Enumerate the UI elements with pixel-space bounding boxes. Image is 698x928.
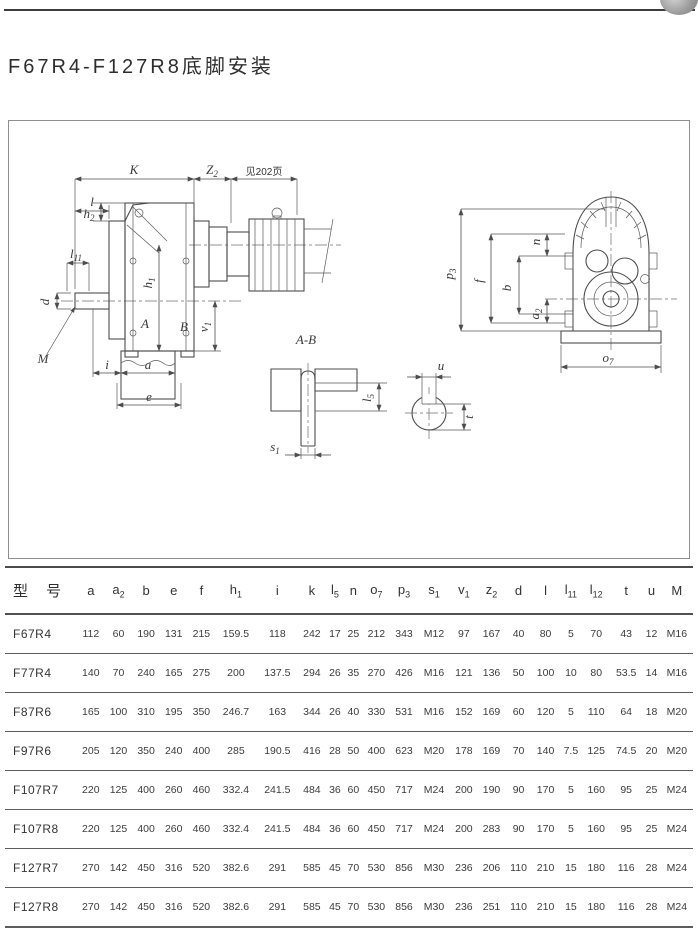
value-cell: 484	[298, 810, 326, 849]
value-cell: 530	[363, 888, 391, 928]
value-cell: 212	[363, 614, 391, 654]
value-cell: 28	[642, 888, 660, 928]
value-cell: 120	[105, 732, 133, 771]
value-cell: 159.5	[215, 614, 256, 654]
column-header-z2: z2	[478, 567, 506, 614]
top-rule	[4, 9, 695, 11]
value-cell: 270	[77, 888, 105, 928]
value-cell: 125	[105, 810, 133, 849]
value-cell: 80	[582, 654, 610, 693]
value-cell: 450	[132, 849, 160, 888]
dim-label-o7: o7	[603, 350, 615, 367]
value-cell: 220	[77, 810, 105, 849]
column-header-l5: l5	[326, 567, 344, 614]
value-cell: 206	[478, 849, 506, 888]
value-cell: 382.6	[215, 849, 256, 888]
value-cell: 165	[77, 693, 105, 732]
value-cell: 450	[132, 888, 160, 928]
value-cell: 28	[642, 849, 660, 888]
value-cell: 210	[532, 888, 560, 928]
dim-label-u: u	[438, 358, 445, 373]
value-cell: 116	[610, 888, 642, 928]
value-cell: 450	[363, 771, 391, 810]
value-cell: 205	[77, 732, 105, 771]
dim-label-a-mark: A	[140, 316, 149, 331]
dim-label-b: b	[499, 284, 514, 291]
value-cell: 5	[559, 693, 582, 732]
value-cell: 260	[160, 810, 188, 849]
value-cell: 112	[77, 614, 105, 654]
dim-label-n: n	[528, 239, 543, 246]
value-cell: 142	[105, 849, 133, 888]
value-cell: 195	[160, 693, 188, 732]
value-cell: M16	[661, 654, 693, 693]
value-cell: 167	[478, 614, 506, 654]
value-cell: 856	[390, 849, 418, 888]
value-cell: 332.4	[215, 810, 256, 849]
table-row: F127R7270142450316520382.629158545705308…	[5, 849, 693, 888]
value-cell: 15	[559, 849, 582, 888]
value-cell: 520	[188, 888, 216, 928]
column-header-l11: l11	[559, 567, 582, 614]
column-header-t: t	[610, 567, 642, 614]
dim-label-d: d	[37, 298, 52, 305]
value-cell: 400	[132, 771, 160, 810]
column-header-a: a	[77, 567, 105, 614]
value-cell: 210	[532, 849, 560, 888]
value-cell: 95	[610, 771, 642, 810]
value-cell: 246.7	[215, 693, 256, 732]
value-cell: 316	[160, 888, 188, 928]
value-cell: 270	[77, 849, 105, 888]
value-cell: 178	[450, 732, 478, 771]
dim-label-a: a	[145, 357, 152, 372]
value-cell: M24	[661, 810, 693, 849]
value-cell: 251	[478, 888, 506, 928]
spec-table-body: F67R411260190131215159.51182421725212343…	[5, 614, 693, 927]
value-cell: 160	[582, 810, 610, 849]
value-cell: 294	[298, 654, 326, 693]
value-cell: 50	[344, 732, 362, 771]
value-cell: M12	[418, 614, 450, 654]
column-header-h1: h1	[215, 567, 256, 614]
value-cell: 45	[326, 888, 344, 928]
value-cell: 70	[344, 849, 362, 888]
spec-table-header-row: 型 号aa2befh1ikl5no7p3s1v1z2dll11l12tuM	[5, 567, 693, 614]
column-header-v1: v1	[450, 567, 478, 614]
dim-label-v1: v1	[196, 322, 213, 332]
dim-label-h1: h1	[140, 278, 157, 289]
value-cell: 460	[188, 810, 216, 849]
drawing-note: 见202页	[246, 166, 283, 178]
value-cell: 450	[363, 810, 391, 849]
spec-table: 型 号aa2befh1ikl5no7p3s1v1z2dll11l12tuM F6…	[5, 566, 693, 928]
model-cell: F107R8	[5, 810, 77, 849]
dim-label-p3: p3	[441, 268, 458, 281]
model-cell: F127R8	[5, 888, 77, 928]
column-header-s1: s1	[418, 567, 450, 614]
column-header-d: d	[505, 567, 531, 614]
value-cell: 90	[505, 771, 531, 810]
value-cell: 60	[344, 810, 362, 849]
model-cell: F107R7	[5, 771, 77, 810]
value-cell: 316	[160, 849, 188, 888]
table-row: F107R7220125400260460332.4241.5484366045…	[5, 771, 693, 810]
value-cell: 310	[132, 693, 160, 732]
column-header-k: k	[298, 567, 326, 614]
value-cell: 60	[505, 693, 531, 732]
dim-label-k: K	[129, 162, 140, 177]
value-cell: M16	[418, 693, 450, 732]
value-cell: 60	[344, 771, 362, 810]
value-cell: 14	[642, 654, 660, 693]
value-cell: 200	[450, 810, 478, 849]
value-cell: 35	[344, 654, 362, 693]
value-cell: 43	[610, 614, 642, 654]
value-cell: 270	[363, 654, 391, 693]
section-view-ab: A-B l5 s1	[270, 332, 387, 459]
value-cell: 160	[582, 771, 610, 810]
value-cell: M24	[661, 771, 693, 810]
value-cell: 520	[188, 849, 216, 888]
value-cell: 45	[326, 849, 344, 888]
value-cell: 285	[215, 732, 256, 771]
value-cell: M20	[418, 732, 450, 771]
table-row: F67R411260190131215159.51182421725212343…	[5, 614, 693, 654]
value-cell: 291	[257, 888, 298, 928]
column-header-b: b	[132, 567, 160, 614]
column-header-a2: a2	[105, 567, 133, 614]
model-cell: F97R6	[5, 732, 77, 771]
value-cell: 236	[450, 888, 478, 928]
column-header-l: l	[532, 567, 560, 614]
value-cell: 70	[344, 888, 362, 928]
value-cell: 70	[505, 732, 531, 771]
value-cell: 17	[326, 614, 344, 654]
value-cell: M30	[418, 849, 450, 888]
value-cell: 484	[298, 771, 326, 810]
value-cell: 7.5	[559, 732, 582, 771]
model-cell: F67R4	[5, 614, 77, 654]
value-cell: 382.6	[215, 888, 256, 928]
column-header-l12: l12	[582, 567, 610, 614]
value-cell: 74.5	[610, 732, 642, 771]
technical-drawing-box: K Z2 见202页 l h2 l11 d M h1 A B v1 i a e …	[8, 120, 690, 559]
value-cell: 18	[642, 693, 660, 732]
value-cell: 200	[450, 771, 478, 810]
side-view: K Z2 见202页 l h2 l11 d M h1 A B v1 i a e	[37, 162, 341, 409]
value-cell: 180	[582, 849, 610, 888]
value-cell: 53.5	[610, 654, 642, 693]
value-cell: 26	[326, 654, 344, 693]
value-cell: 40	[505, 614, 531, 654]
column-header-n: n	[344, 567, 362, 614]
value-cell: 25	[344, 614, 362, 654]
value-cell: 50	[505, 654, 531, 693]
value-cell: 15	[559, 888, 582, 928]
table-row: F77R414070240165275200137.52942635270426…	[5, 654, 693, 693]
page-title: F67R4-F127R8底脚安装	[8, 50, 274, 79]
value-cell: 717	[390, 810, 418, 849]
table-row: F97R6205120350240400285190.5416285040062…	[5, 732, 693, 771]
table-row: F107R8220125400260460332.4241.5484366045…	[5, 810, 693, 849]
column-header-p3: p3	[390, 567, 418, 614]
value-cell: 236	[450, 849, 478, 888]
value-cell: 291	[257, 849, 298, 888]
value-cell: 275	[188, 654, 216, 693]
value-cell: 140	[532, 732, 560, 771]
value-cell: 120	[532, 693, 560, 732]
value-cell: 163	[257, 693, 298, 732]
dim-label-m: M	[37, 351, 50, 366]
section-title: A-B	[295, 332, 316, 347]
value-cell: 142	[105, 888, 133, 928]
value-cell: 25	[642, 810, 660, 849]
value-cell: 400	[188, 732, 216, 771]
rear-view: p3 f b a2 n o7	[441, 191, 677, 373]
column-header-i: i	[257, 567, 298, 614]
dim-label-z2: Z2	[206, 162, 218, 179]
corner-logo	[660, 0, 698, 15]
value-cell: 426	[390, 654, 418, 693]
value-cell: 125	[582, 732, 610, 771]
value-cell: 28	[326, 732, 344, 771]
value-cell: 116	[610, 849, 642, 888]
value-cell: 125	[105, 771, 133, 810]
value-cell: 136	[478, 654, 506, 693]
value-cell: 180	[582, 888, 610, 928]
dim-label-i: i	[105, 357, 109, 372]
column-header-e: e	[160, 567, 188, 614]
value-cell: 5	[559, 614, 582, 654]
value-cell: 5	[559, 771, 582, 810]
value-cell: 856	[390, 888, 418, 928]
model-cell: F77R4	[5, 654, 77, 693]
value-cell: 90	[505, 810, 531, 849]
value-cell: 350	[188, 693, 216, 732]
value-cell: 215	[188, 614, 216, 654]
value-cell: 20	[642, 732, 660, 771]
table-row: F87R6165100310195350246.7163344264033053…	[5, 693, 693, 732]
value-cell: 100	[532, 654, 560, 693]
value-cell: 70	[582, 614, 610, 654]
column-header-f: f	[188, 567, 216, 614]
dim-label-a2: a2	[527, 308, 544, 320]
value-cell: 330	[363, 693, 391, 732]
value-cell: 10	[559, 654, 582, 693]
dim-label-b-mark: B	[180, 319, 188, 334]
column-header-model: 型 号	[5, 567, 77, 614]
column-header-u: u	[642, 567, 660, 614]
value-cell: 585	[298, 849, 326, 888]
dim-label-l: l	[90, 194, 94, 209]
value-cell: 531	[390, 693, 418, 732]
value-cell: 460	[188, 771, 216, 810]
value-cell: 717	[390, 771, 418, 810]
value-cell: 585	[298, 888, 326, 928]
value-cell: 152	[450, 693, 478, 732]
value-cell: M30	[418, 888, 450, 928]
value-cell: 169	[478, 693, 506, 732]
value-cell: 110	[505, 849, 531, 888]
dim-label-s1: s1	[270, 439, 280, 456]
value-cell: M24	[661, 888, 693, 928]
value-cell: 70	[105, 654, 133, 693]
value-cell: 26	[326, 693, 344, 732]
value-cell: 97	[450, 614, 478, 654]
value-cell: M24	[418, 810, 450, 849]
model-cell: F87R6	[5, 693, 77, 732]
dim-label-t: t	[461, 415, 476, 419]
column-header-o7: o7	[363, 567, 391, 614]
value-cell: 95	[610, 810, 642, 849]
value-cell: 12	[642, 614, 660, 654]
value-cell: M20	[661, 693, 693, 732]
value-cell: 140	[77, 654, 105, 693]
value-cell: 36	[326, 810, 344, 849]
value-cell: 36	[326, 771, 344, 810]
value-cell: 343	[390, 614, 418, 654]
value-cell: 100	[105, 693, 133, 732]
value-cell: 260	[160, 771, 188, 810]
value-cell: 530	[363, 849, 391, 888]
value-cell: 240	[160, 732, 188, 771]
value-cell: 5	[559, 810, 582, 849]
value-cell: 60	[105, 614, 133, 654]
table-row: F127R8270142450316520382.629158545705308…	[5, 888, 693, 928]
value-cell: 121	[450, 654, 478, 693]
value-cell: 170	[532, 771, 560, 810]
dim-label-l5: l5	[359, 393, 376, 402]
value-cell: 332.4	[215, 771, 256, 810]
value-cell: 169	[478, 732, 506, 771]
value-cell: 344	[298, 693, 326, 732]
value-cell: 400	[363, 732, 391, 771]
value-cell: 242	[298, 614, 326, 654]
value-cell: 25	[642, 771, 660, 810]
value-cell: 190	[478, 771, 506, 810]
value-cell: 40	[344, 693, 362, 732]
dim-label-l11: l11	[70, 246, 82, 263]
value-cell: M24	[661, 849, 693, 888]
technical-drawing: K Z2 见202页 l h2 l11 d M h1 A B v1 i a e …	[9, 121, 689, 558]
model-cell: F127R7	[5, 849, 77, 888]
value-cell: 170	[532, 810, 560, 849]
value-cell: 165	[160, 654, 188, 693]
value-cell: M24	[418, 771, 450, 810]
value-cell: 241.5	[257, 810, 298, 849]
value-cell: 80	[532, 614, 560, 654]
value-cell: M20	[661, 732, 693, 771]
shaft-section-view: u t	[405, 358, 476, 439]
value-cell: 416	[298, 732, 326, 771]
value-cell: 400	[132, 810, 160, 849]
value-cell: 137.5	[257, 654, 298, 693]
value-cell: 200	[215, 654, 256, 693]
value-cell: 118	[257, 614, 298, 654]
value-cell: M16	[661, 614, 693, 654]
value-cell: 240	[132, 654, 160, 693]
value-cell: 350	[132, 732, 160, 771]
value-cell: 190	[132, 614, 160, 654]
value-cell: 623	[390, 732, 418, 771]
value-cell: M16	[418, 654, 450, 693]
value-cell: 190.5	[257, 732, 298, 771]
column-header-M: M	[661, 567, 693, 614]
value-cell: 110	[505, 888, 531, 928]
value-cell: 64	[610, 693, 642, 732]
value-cell: 110	[582, 693, 610, 732]
value-cell: 283	[478, 810, 506, 849]
value-cell: 241.5	[257, 771, 298, 810]
dim-label-f: f	[471, 277, 486, 283]
value-cell: 131	[160, 614, 188, 654]
value-cell: 220	[77, 771, 105, 810]
dim-label-e: e	[146, 389, 152, 404]
